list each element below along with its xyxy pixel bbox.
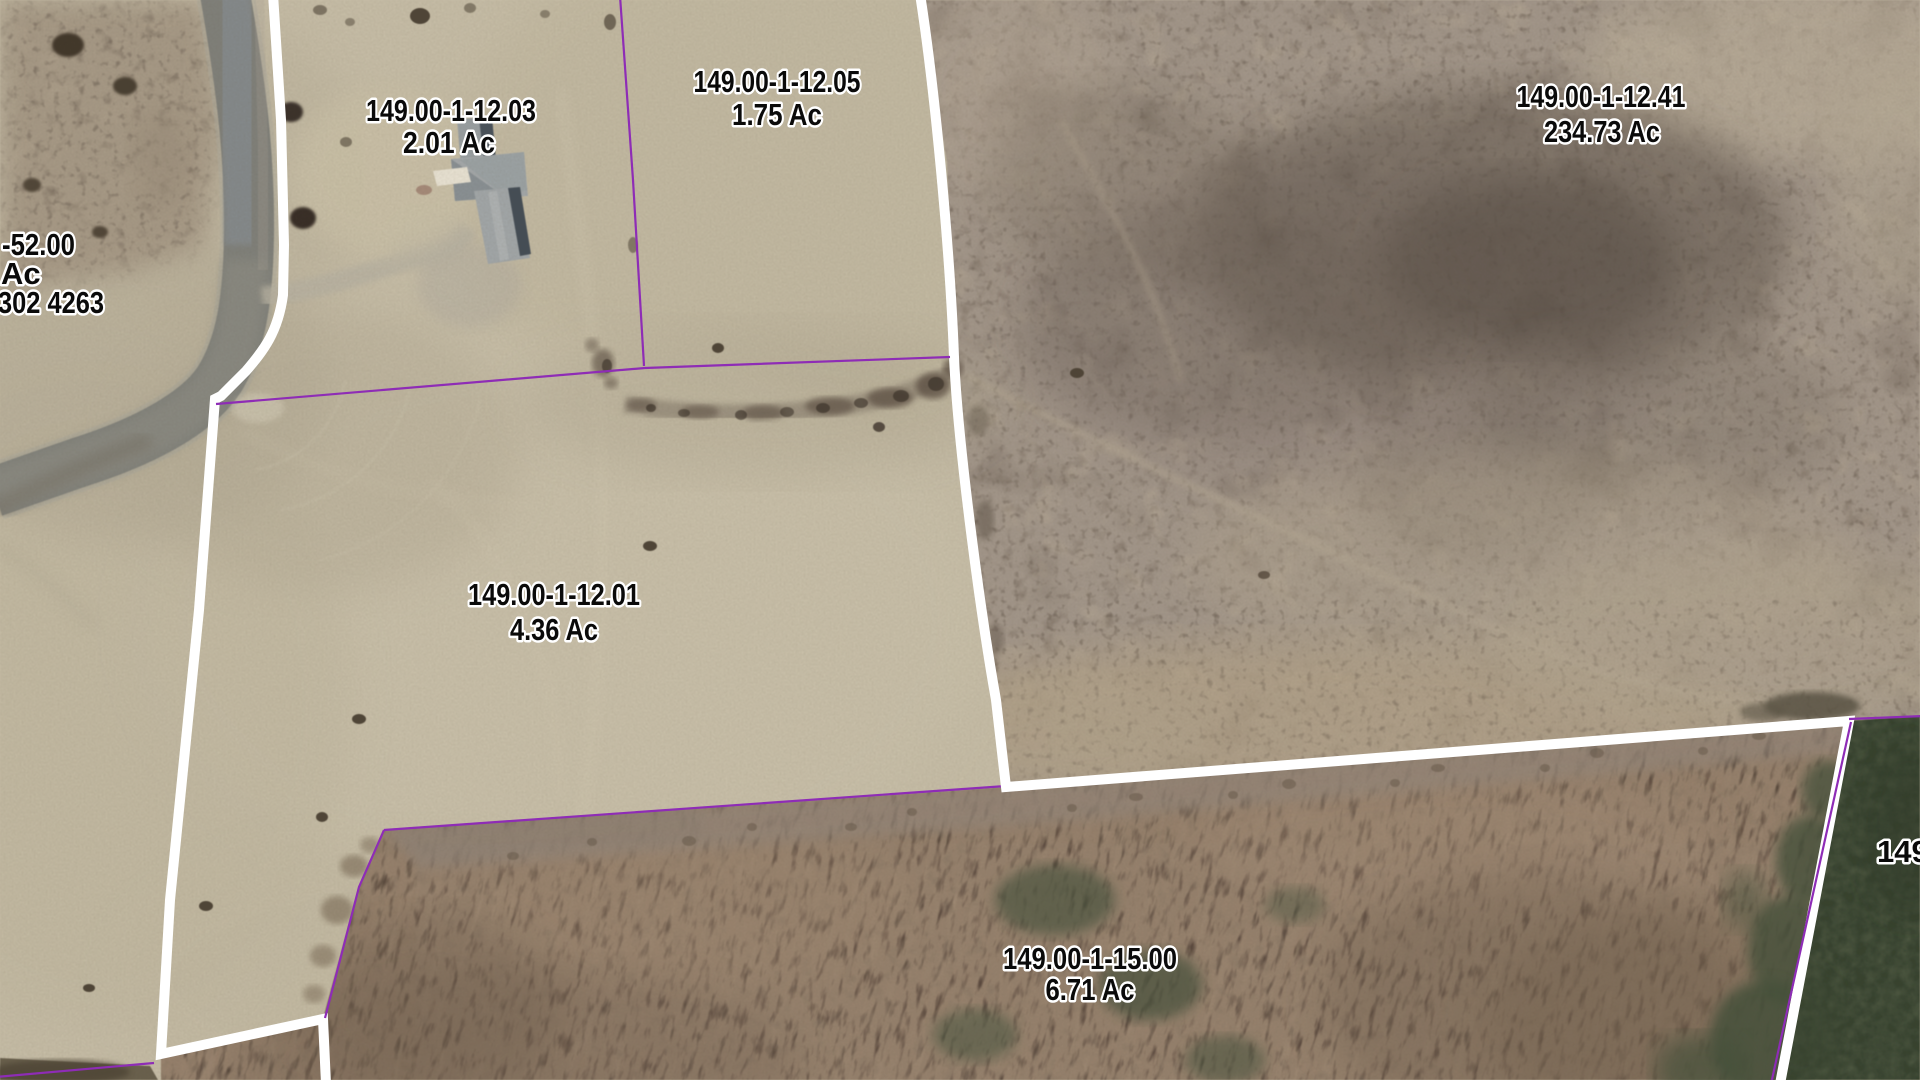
svg-text:149.00-1-12.01: 149.00-1-12.01 [468,577,640,612]
svg-text:149.00-1-15.00: 149.00-1-15.00 [1003,941,1177,976]
svg-text:1.75 Ac: 1.75 Ac [732,97,822,132]
svg-text:2.01 Ac: 2.01 Ac [403,125,495,160]
svg-text:149.00-1-12.03: 149.00-1-12.03 [366,93,536,128]
svg-text:234.73 Ac: 234.73 Ac [1544,114,1660,149]
svg-text:4.36 Ac: 4.36 Ac [510,612,598,647]
svg-text:149.00-1-12.41: 149.00-1-12.41 [1517,79,1686,114]
svg-text:6.71 Ac: 6.71 Ac [1046,972,1135,1007]
svg-text:302 4263: 302 4263 [0,285,104,320]
svg-text:149.0: 149.0 [1877,834,1920,869]
svg-text:149.00-1-12.05: 149.00-1-12.05 [694,64,861,99]
